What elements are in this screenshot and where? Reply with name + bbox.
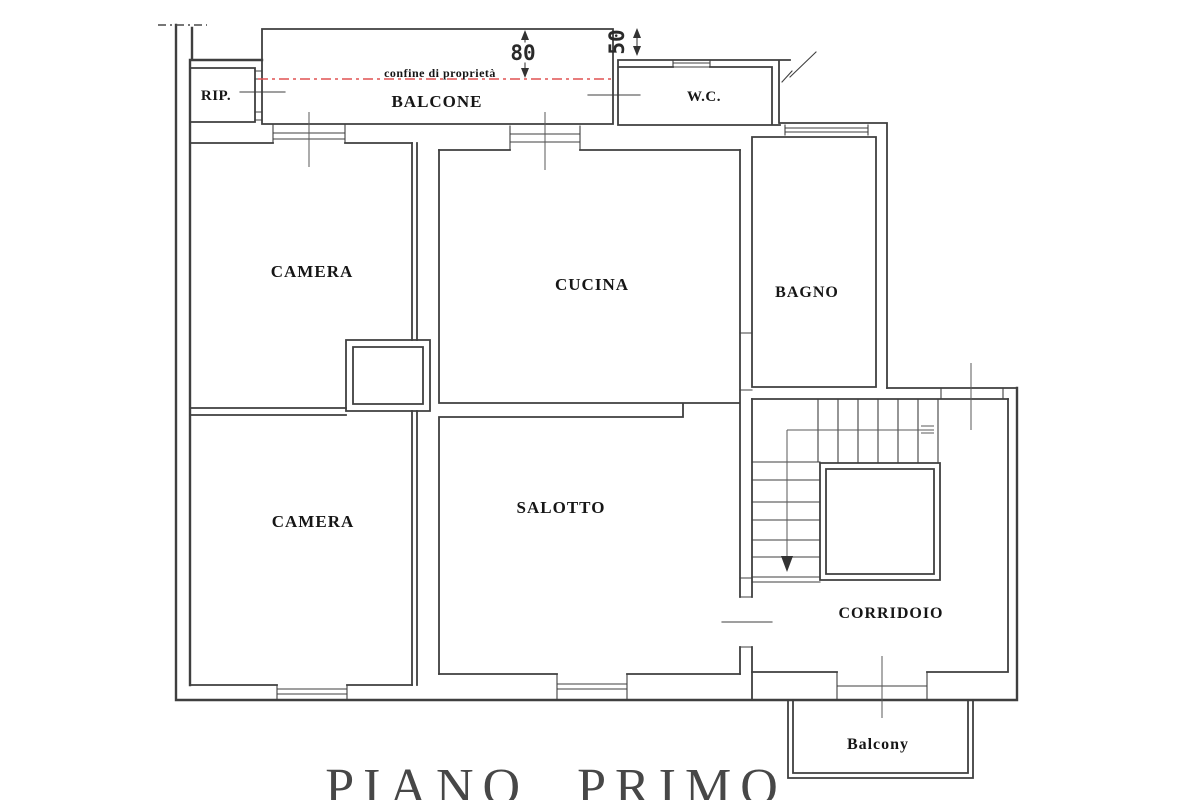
room-label-bagno: BAGNO: [775, 284, 839, 301]
room-label-rip: RIP.: [201, 88, 231, 104]
dim-arrow-up: [521, 30, 529, 40]
room-label-camera-bottom: CAMERA: [272, 512, 355, 531]
corridor-top-wall: [752, 363, 1017, 430]
stair-treads: [752, 400, 938, 582]
dim-arrow-up: [633, 28, 641, 38]
wall-segment: [190, 143, 752, 700]
stair-level-marks: [921, 426, 934, 433]
room-label-camera-top: CAMERA: [271, 262, 354, 281]
room-label-cucina: CUCINA: [555, 275, 629, 294]
outer-walls: [158, 25, 1017, 700]
dimension-50-text: 50: [605, 29, 629, 54]
salotto-window: [557, 674, 627, 700]
room-label-balcone: BALCONE: [391, 92, 482, 111]
dim-arrow-down: [633, 46, 641, 56]
plan-title: PIANO PRIMO: [325, 759, 787, 800]
wall-joint-ticks: [740, 333, 752, 647]
bottom-walls: [190, 399, 1008, 718]
room-label-corridoio: CORRIDOIO: [838, 605, 943, 622]
internal-walls: [190, 143, 772, 700]
floor-plan-canvas: RIP. confine di proprietà BALCONE W.C. 8…: [0, 0, 1200, 800]
floor-plan-svg: RIP. confine di proprietà BALCONE W.C. 8…: [0, 0, 1200, 800]
bagno-window: [785, 125, 868, 135]
room-label-balcony: Balcony: [847, 736, 909, 753]
boundary-label: confine di proprietà: [384, 66, 496, 80]
wall-segment: [752, 388, 1017, 399]
stairwell-landing: [820, 463, 940, 580]
wall-segment: [190, 399, 1008, 685]
room-label-wc: W.C.: [687, 89, 721, 105]
wall-segment: [190, 143, 740, 150]
dim-arrow-down: [521, 68, 529, 78]
wall-segment: [752, 123, 887, 388]
closet-box: [346, 340, 430, 411]
staircase: [752, 400, 940, 582]
stair-down-arrow: [781, 556, 793, 572]
dimension-50: [633, 28, 641, 56]
camera-bottom-window: [277, 685, 347, 700]
room-label-salotto: SALOTTO: [517, 498, 606, 517]
wall-segment: [176, 25, 1017, 700]
wc-window: [673, 60, 710, 67]
corridor-window-jambs: [941, 388, 1003, 399]
dimension-80-text: 80: [510, 41, 535, 65]
wall-break-mark: [782, 52, 816, 82]
top-wall-windows: [190, 112, 740, 170]
bagno-walls: [752, 123, 887, 388]
